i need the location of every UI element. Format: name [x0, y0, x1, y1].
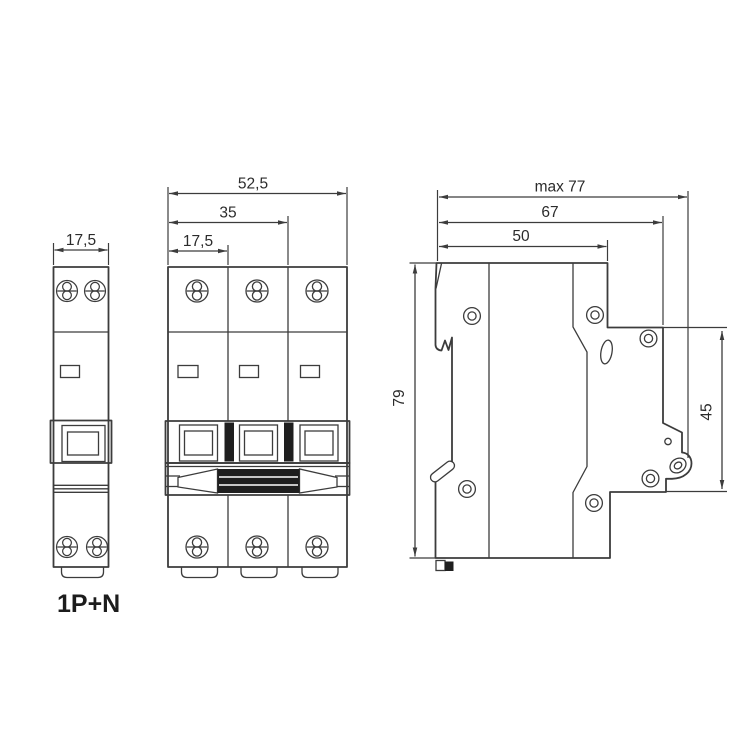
dim-label-one-pole: 17,5	[183, 233, 213, 250]
dim-label-total-width: 52,5	[238, 176, 268, 193]
dim-label-height: 79	[391, 389, 408, 406]
dim-label-front-height: 45	[699, 403, 716, 420]
pole-separator-bar	[225, 423, 235, 462]
dim-label-depth-upper: 67	[541, 204, 558, 221]
pole-separator-bar	[284, 423, 294, 462]
paper-background	[0, 0, 750, 750]
dim-label-two-poles: 35	[219, 205, 236, 222]
dim-label-1pn-width: 17,5	[66, 232, 96, 249]
tie-bar	[218, 469, 300, 493]
pole-caption: 1P+N	[57, 590, 120, 618]
dim-label-max-depth: max 77	[535, 179, 586, 196]
dim-label-depth-top: 50	[512, 228, 530, 245]
dimensional-drawing: 17,5 1P+N 52,5 35	[0, 0, 750, 750]
clip-release-tab	[436, 561, 445, 571]
clip-release-tab-dark	[445, 562, 454, 572]
